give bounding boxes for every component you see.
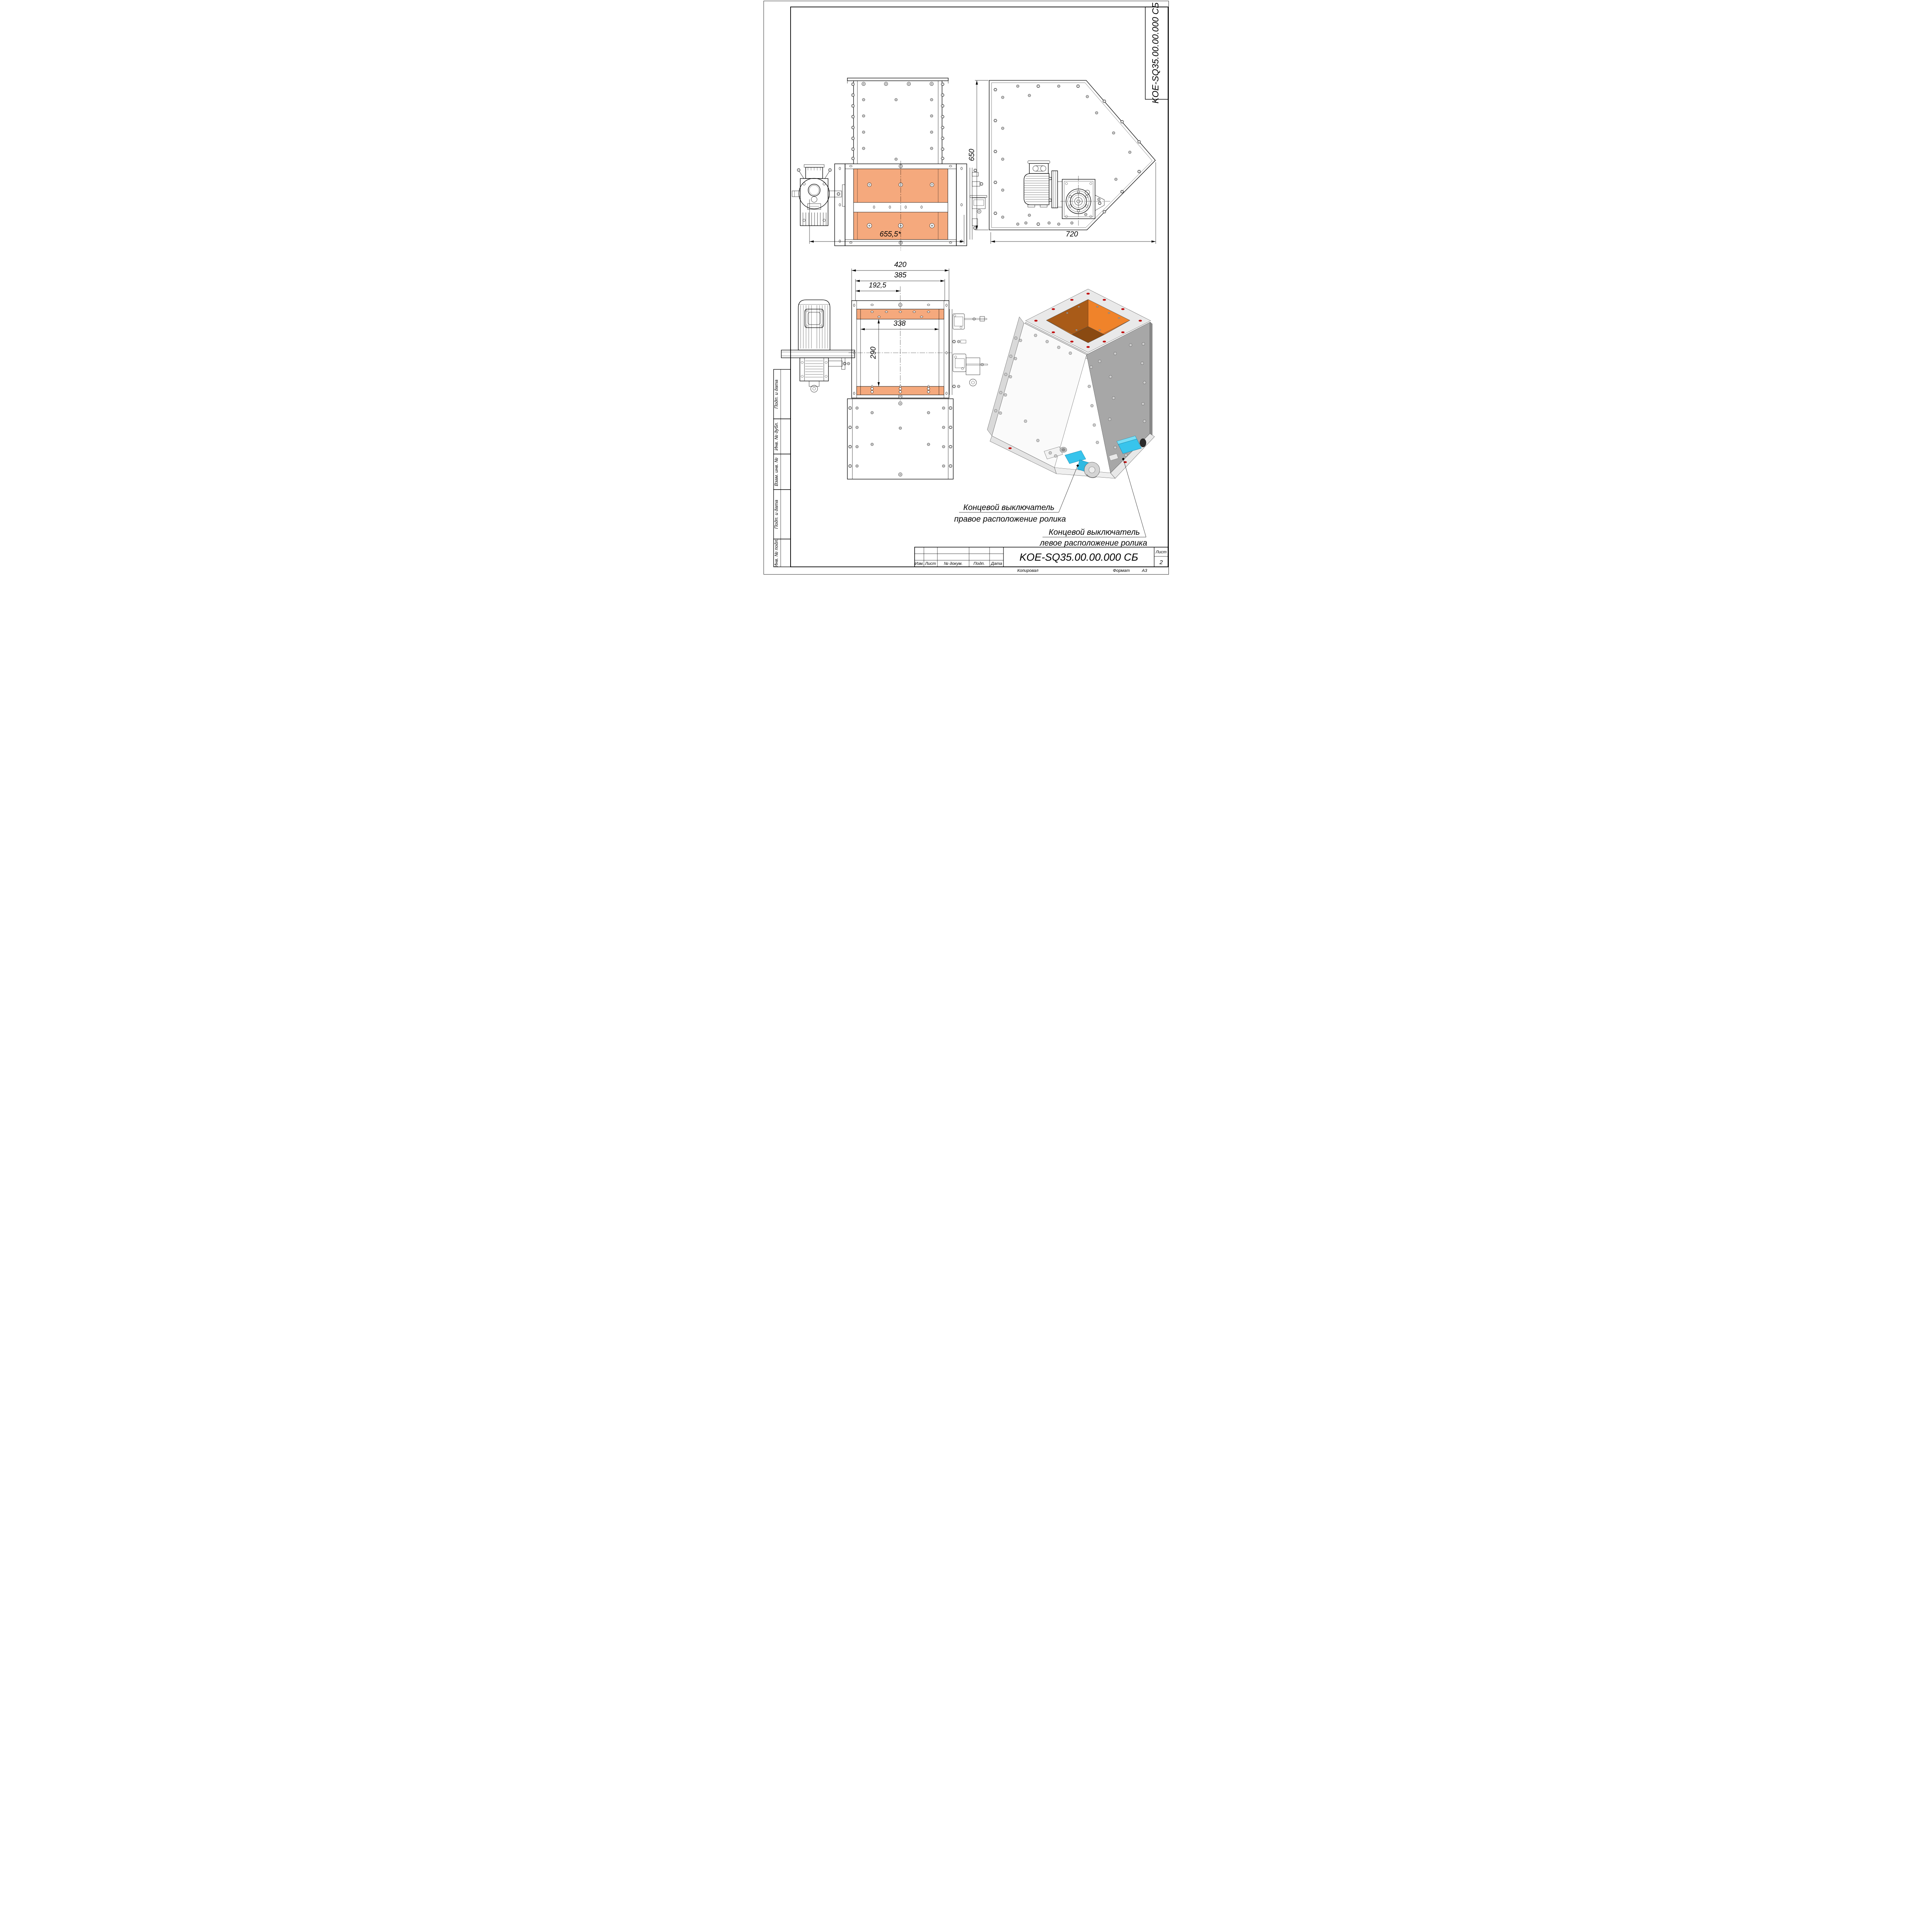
col-data: Дата	[990, 561, 1002, 566]
dim-front-width: 655,5*	[879, 230, 901, 238]
col-podp: Подп.	[973, 561, 985, 566]
front-view: 655,5*	[792, 78, 987, 250]
plan-right-mechanism	[949, 309, 988, 395]
duct-top-flange	[847, 78, 948, 81]
switch-cap	[1140, 439, 1146, 447]
plan-view: 420 385 192,5 338 290	[781, 261, 988, 479]
gearmotor-front	[792, 165, 845, 226]
duct-walls	[854, 81, 942, 164]
drawing-frame	[764, 1, 1168, 575]
gearmotor-side	[1024, 161, 1111, 226]
dim-plan-outer: 420	[894, 261, 906, 269]
gearbox-fins	[803, 213, 826, 226]
dim-plan-half: 192,5	[869, 281, 886, 289]
dim-side-width-group: 720	[991, 162, 1156, 244]
gearmotor-plan	[781, 300, 855, 392]
format-value: А3	[1141, 568, 1147, 573]
side-bolt-pattern	[993, 85, 1140, 225]
sheet-number: 2	[1159, 559, 1163, 566]
callout-right-line1: Концевой выключатель	[963, 503, 1054, 512]
terminal-box-plan	[805, 309, 823, 328]
gearbox-side	[1062, 179, 1095, 219]
corner-stamp: KOE-SQ35.00.00.000 СБ	[1145, 2, 1168, 104]
callout-left-line2: левое расположение ролика	[1039, 539, 1147, 548]
side-view: 650 720	[968, 80, 1156, 244]
dim-plan-opening-w: 338	[893, 320, 906, 328]
col-dokum: № докум.	[944, 561, 962, 566]
callout-right-line2: правое расположение ролика	[954, 515, 1066, 524]
side-plate-outline	[989, 80, 1155, 230]
title-designation: KOE-SQ35.00.00.000 СБ	[1019, 551, 1138, 563]
margin-stamps: Подп. и дата Инв. № дубл. Взам. инв. № П…	[774, 369, 791, 567]
motor-terminal-box-side	[1029, 163, 1048, 173]
drawing-canvas: KOE-SQ35.00.00.000 СБ Подп. и дата Инв. …	[763, 0, 1170, 575]
dim-plan-half-group: 192,5	[855, 281, 900, 292]
stamp-podp-data-1: Подп. и дата	[774, 379, 779, 408]
stamp-podp-data-2: Подп. и дата	[774, 500, 779, 529]
plan-lower-panel	[847, 399, 953, 479]
dim-plan-opening-h: 290	[869, 347, 878, 359]
col-list: Лист	[924, 561, 935, 566]
format-label: Формат	[1113, 568, 1130, 573]
duct-bolt-pattern	[851, 82, 944, 160]
dim-plan-opening-w-group: 338	[861, 320, 939, 330]
front-right-bracket	[970, 168, 987, 240]
callout-left-line1: Концевой выключатель	[1049, 528, 1140, 537]
title-block: Изм. Лист № докум. Подп. Дата KOE-SQ35.0…	[915, 547, 1168, 573]
motor-body-plan	[798, 300, 830, 350]
inner-frame	[791, 7, 1168, 567]
drawing-sheet: KOE-SQ35.00.00.000 СБ Подп. и дата Инв. …	[763, 0, 1170, 575]
plan-limit-switch-1	[953, 314, 964, 329]
stamp-inv-podl: Инв. № подл.	[774, 539, 779, 567]
col-izm: Изм.	[915, 561, 923, 566]
dim-side-width: 720	[1066, 230, 1078, 238]
gearbox-plan	[800, 358, 828, 381]
stamp-vzam-inv: Взам. инв. №	[774, 457, 779, 486]
page-border	[764, 1, 1168, 575]
dim-plan-bolt: 385	[894, 271, 906, 279]
stamp-inv-dubl: Инв. № дубл.	[774, 422, 779, 451]
corner-designation: KOE-SQ35.00.00.000 СБ	[1150, 2, 1160, 104]
front-limit-switch	[972, 198, 985, 209]
plan-limit-switch-2	[953, 354, 966, 372]
plan-orange-strip-top	[857, 309, 944, 319]
dim-side-height: 650	[968, 149, 976, 161]
motor-body-side	[1024, 173, 1049, 205]
motor-terminal-lid	[804, 165, 824, 167]
iso-view	[987, 289, 1155, 478]
sheet-label: Лист	[1155, 550, 1166, 554]
kopiroval-label: Копировал	[1017, 568, 1038, 573]
